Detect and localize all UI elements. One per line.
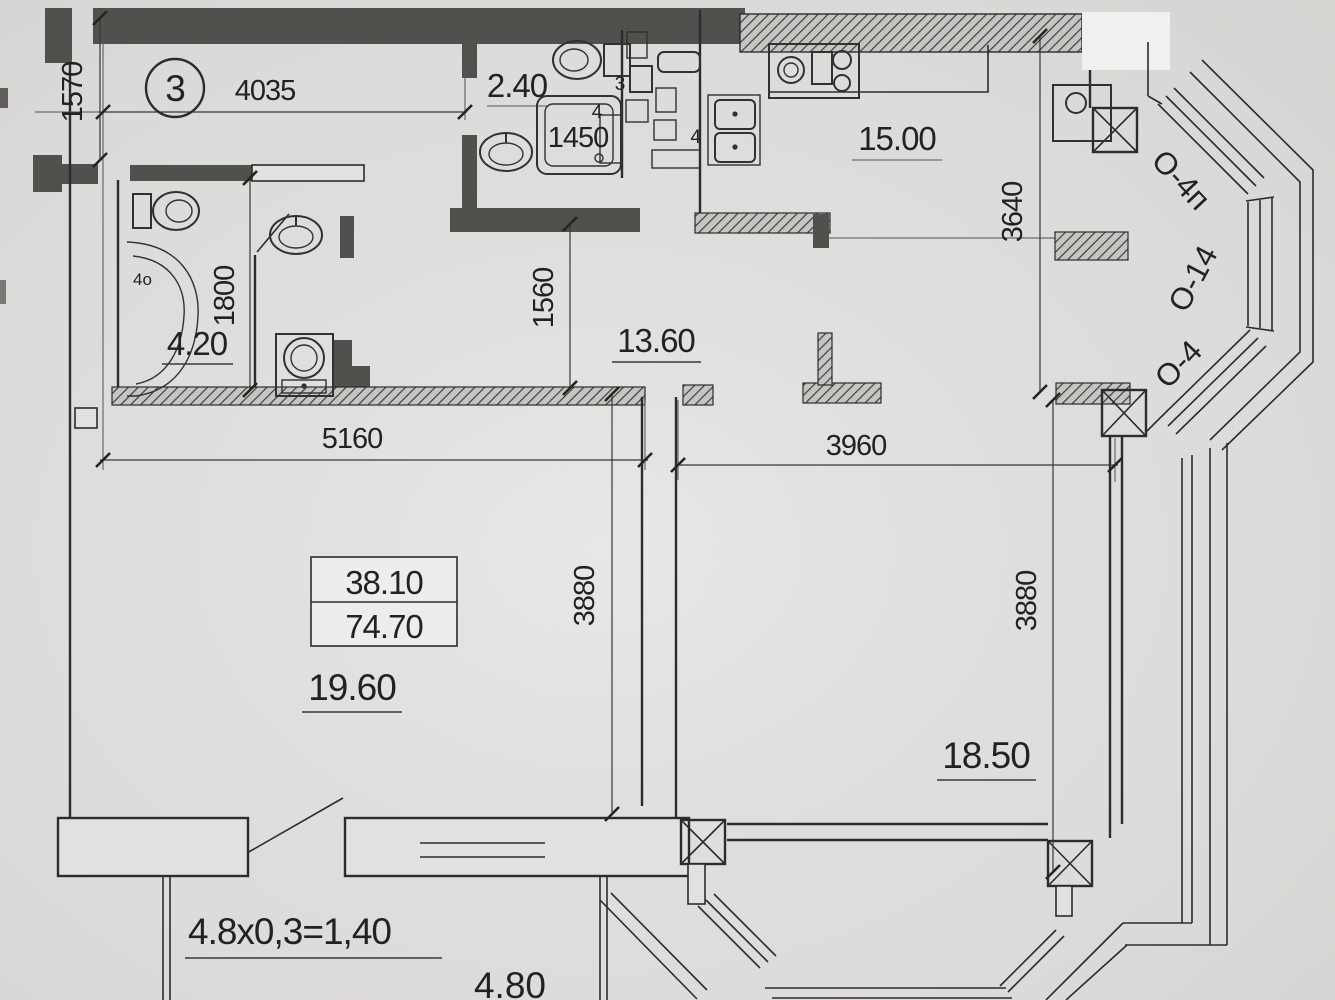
scan-mark	[0, 280, 6, 304]
dim-living-depth: 3880	[569, 566, 601, 627]
scan-mark	[0, 88, 8, 108]
living-south-wall-west	[58, 818, 248, 876]
entry-jamb	[61, 164, 98, 184]
kitchen-south-wall	[695, 213, 830, 233]
dim-bath-depth: 1800	[209, 266, 241, 327]
dim-top-width: 4035	[235, 75, 296, 107]
floor-plan-page: 3 4035 1570 1450 1560 1800 3640 5160 396…	[0, 0, 1335, 1000]
balcony-width: 4.80	[474, 965, 546, 1000]
area-living-room: 19.60	[308, 667, 396, 708]
floor-plan-canvas: 3 4035 1570 1450 1560 1800 3640 5160 396…	[0, 0, 1335, 1000]
apartment-number: 3	[165, 68, 185, 109]
kitchen-south-wall-east	[1055, 232, 1128, 260]
area-kitchen: 15.00	[858, 120, 936, 157]
bathtub-label: 4о	[133, 270, 152, 289]
vent-label-a: 3	[615, 74, 626, 95]
entry-jamb	[33, 155, 62, 192]
kitchen-south-pier	[813, 214, 829, 248]
area-bedroom: 18.50	[942, 735, 1030, 776]
dim-entry-width: 1570	[57, 62, 89, 123]
bathroom-north-wall	[130, 165, 252, 181]
hall-pier	[337, 366, 370, 388]
top-wall-hatched	[740, 14, 1082, 52]
table-total-area: 74.70	[345, 608, 423, 645]
bath-south-wall	[450, 208, 640, 232]
area-table: 38.10 74.70	[311, 557, 457, 646]
hall-south-wall	[112, 387, 645, 405]
dim-kitchen-depth: 3640	[997, 182, 1029, 243]
dim-shower: 1450	[548, 122, 609, 154]
bay-wall-stub	[688, 864, 705, 904]
bedroom-north-wall-east	[1056, 383, 1130, 404]
closet-north-wall	[252, 165, 364, 181]
hall-south-pier	[683, 385, 713, 405]
vent-label-b: 4	[592, 102, 603, 123]
closet-east-pier	[340, 216, 354, 258]
dim-hall-width: 1560	[528, 268, 560, 329]
area-hallway: 13.60	[617, 322, 695, 359]
table-living-area: 38.10	[345, 564, 423, 601]
whiteout-patch	[1082, 12, 1170, 70]
dim-living-width: 5160	[322, 423, 383, 455]
wall-box	[75, 408, 97, 428]
entry-jamb	[45, 8, 72, 63]
area-bathroom: 4.20	[167, 325, 228, 362]
balcony-area-formula: 4.8x0,3=1,40	[188, 911, 391, 952]
bath-door-jamb	[462, 42, 477, 78]
dim-bedroom-width: 3960	[826, 430, 887, 462]
dim-bedroom-depth: 3880	[1011, 571, 1043, 632]
kitchen-sink-label: 4	[690, 127, 701, 148]
area-bathroom-small: 2.40	[487, 67, 548, 104]
bedroom-north-stem	[818, 333, 832, 385]
living-south-wall-east	[345, 818, 689, 876]
bedroom-north-wall	[803, 383, 881, 403]
